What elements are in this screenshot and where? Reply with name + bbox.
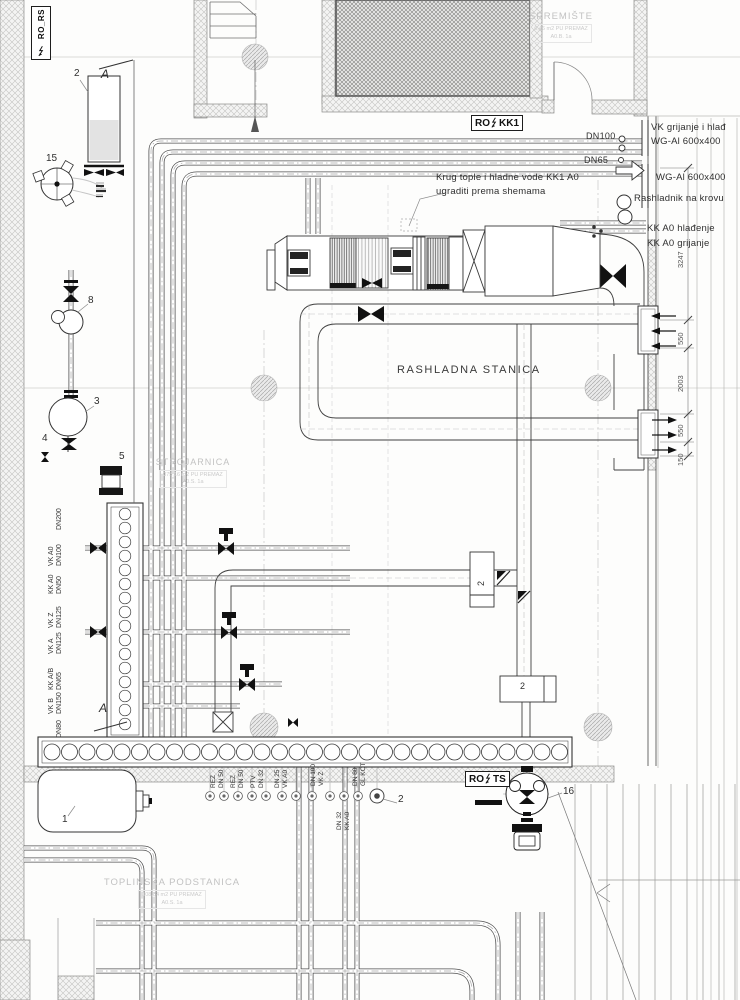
bottom-manifold [38, 737, 572, 767]
room-spremiste-code: A0.B. 1a [534, 34, 588, 41]
dim-2003: 2003 [677, 375, 685, 392]
note-wg-duct-upper: WG-Al 600x400 [651, 137, 721, 147]
room-spremiste-name: SPREMIŠTE [506, 12, 616, 22]
note-rashladnik: Rashladnik na krovu [634, 194, 724, 204]
item-16: 16 [563, 786, 574, 797]
room-toplinska-info: 108,84 m2 PU PREMAZ A0.S. 1a [138, 890, 206, 908]
dim-550-lower: 550 [677, 424, 685, 437]
panel-ro-rs: RO_RS [31, 6, 51, 60]
panel-ro-kk1: RO KK1 [471, 115, 523, 131]
note-wg-duct-lower: WG-Al 600x400 [656, 173, 726, 183]
room-toplinska: TOPLINSKA PODSTANICA 108,84 m2 PU PREMAZ… [92, 878, 252, 909]
note-krug-line1: Krug tople i hladne vode KK1 A0 [436, 173, 579, 183]
device-8 [52, 280, 84, 398]
item-2-box-low: 2 [520, 682, 525, 692]
room-strojarnica-code: A0.S. 1a [163, 479, 223, 486]
device-15 [33, 161, 106, 207]
pipe-label-dn25: DN 25 VK A0 [274, 770, 289, 788]
pipe-label-dn80-kot: DN 80 GL KOT [352, 762, 367, 786]
room-rashladna-stanica: RASHLADNA STANICA [397, 364, 541, 376]
item-2-flange: 2 [398, 794, 404, 805]
room-strojarnica: STROJARNICA 375,16 m2 PU PREMAZ A0.S. 1a [138, 458, 248, 488]
pipe-label-dn80: DN80 [56, 720, 64, 738]
item-15: 15 [46, 153, 57, 164]
note-vk-grijanje: VK grijanje i hlađ [651, 123, 726, 133]
device-2-vessel [84, 76, 124, 195]
item-1: 1 [62, 814, 68, 825]
item-4: 4 [42, 433, 48, 444]
room-spremiste-info: 6,46 m2 PU PREMAZ A0.B. 1a [530, 24, 592, 42]
room-toplinska-area: 108,84 m2 PU PREMAZ [142, 892, 202, 899]
stairs-bottom-right [558, 784, 740, 1000]
device-5-pump [99, 466, 123, 495]
item-2-box-mid: 2 [477, 581, 487, 586]
pipe-label-dn32-kka0: DN 32 KK A0 [336, 812, 351, 830]
room-toplinska-name: TOPLINSKA PODSTANICA [92, 878, 252, 888]
room-strojarnica-name: STROJARNICA [138, 458, 248, 468]
plan-linework [0, 0, 740, 1000]
dimension-chain [660, 164, 694, 460]
room-spremiste-area: 6,46 m2 PU PREMAZ [534, 26, 588, 33]
panel-ro-kk1-left: RO [475, 118, 490, 129]
panel-ro-kk1-right: KK1 [499, 118, 519, 129]
unit-2-boxes [470, 552, 556, 702]
tag-dn100: DN100 [586, 132, 616, 142]
item-8: 8 [88, 295, 94, 306]
item-2-vessel: 2 [74, 68, 80, 79]
panel-ro-ts-right: TS [493, 774, 506, 785]
lightning-icon [38, 46, 45, 57]
pipe-label-rez2: REZ DN 50 [230, 770, 245, 788]
room-strojarnica-info: 375,16 m2 PU PREMAZ A0.S. 1a [159, 470, 227, 488]
spremiste-door [554, 62, 592, 100]
room-strojarnica-area: 375,16 m2 PU PREMAZ [163, 472, 223, 479]
pipe-label-dn100-vkz: DN 100 VK Z [310, 764, 325, 786]
pipe-label-kkab: KK A/B DN65 [48, 668, 64, 690]
section-mark-a-bottom: A [99, 702, 107, 715]
tag-dn65: DN65 [584, 156, 608, 166]
pipe-label-dn200: DN200 [56, 508, 64, 530]
item-3: 3 [94, 396, 100, 407]
panel-ro-ts-left: RO [469, 774, 484, 785]
note-krug-line2: ugraditi prema shemama [436, 187, 545, 197]
pipe-label-rez1: REZ DN 50 [210, 770, 225, 788]
pipe-label-vka: VK A DN125 [48, 632, 64, 654]
room-toplinska-code: A0.S. 1a [142, 900, 202, 907]
tank-1 [38, 770, 152, 832]
note-kk-hladjenje: KK A0 hlađenje [647, 224, 715, 234]
dim-150: 150 [677, 453, 685, 466]
pipe-label-vkb: VK B DN150 [48, 692, 64, 714]
structural-columns [242, 44, 612, 741]
device-4 [41, 452, 49, 462]
item-5: 5 [119, 451, 125, 462]
lightning-icon [491, 117, 498, 129]
panel-ro-ts: RO TS [465, 771, 510, 787]
pipe-label-vka0: VK A0 DN100 [48, 544, 64, 566]
room-spremiste: SPREMIŠTE 6,46 m2 PU PREMAZ A0.B. 1a [506, 12, 616, 43]
pipe-label-kka0: KK A0 DN50 [48, 575, 64, 594]
floor-plan-sheet: RO_RS RO KK1 RO TS SPREMIŠTE 6,46 m2 PU … [0, 0, 740, 1000]
ahu-unit [267, 226, 600, 296]
pipe-label-vkz: VK Z DN125 [48, 606, 64, 628]
left-manifold [107, 503, 143, 739]
section-mark-a-top: A [101, 68, 109, 81]
lightning-icon [485, 773, 492, 785]
ducts [213, 234, 644, 760]
dim-3247: 3247 [677, 251, 685, 268]
pipe-label-ptv: PTV DN 32 [250, 770, 265, 788]
note-kk-grijanje: KK A0 grijanje [647, 239, 709, 249]
panel-ro-rs-label: RO_RS [37, 9, 46, 39]
dim-550-upper: 550 [677, 332, 685, 345]
device-3-tank [49, 398, 87, 452]
